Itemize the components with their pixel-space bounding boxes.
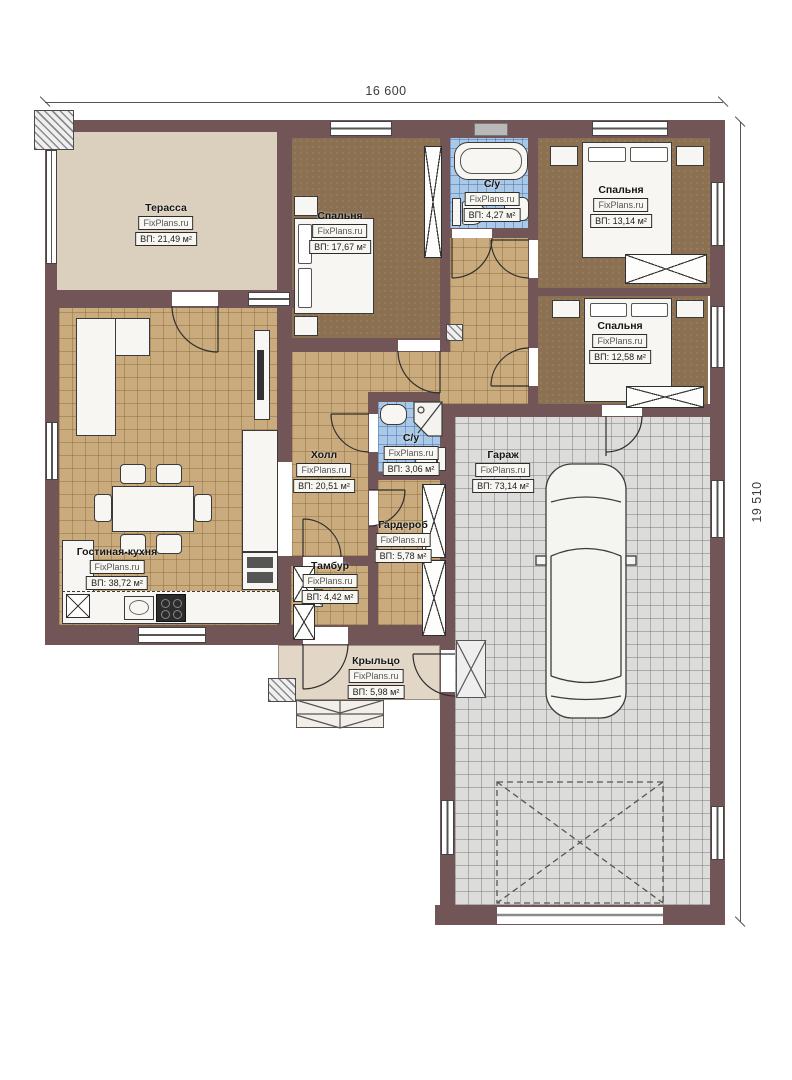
watermark: FixPlans.ru bbox=[383, 446, 438, 460]
watermark: FixPlans.ru bbox=[89, 560, 144, 574]
watermark: FixPlans.ru bbox=[592, 334, 647, 348]
car-icon bbox=[536, 464, 636, 718]
room-name: Спальня bbox=[598, 184, 643, 196]
room-name: Гардероб bbox=[378, 519, 428, 531]
room-area: ВП: 12,58 м² bbox=[589, 350, 651, 364]
watermark: FixPlans.ru bbox=[464, 192, 519, 206]
watermark: FixPlans.ru bbox=[475, 463, 530, 477]
room-area: ВП: 20,51 м² bbox=[293, 479, 355, 493]
room-label-porch: Крыльцо FixPlans.ru ВП: 5,98 м² bbox=[348, 655, 405, 699]
room-name: Тамбур bbox=[311, 560, 349, 572]
garage-gate-zone bbox=[497, 782, 663, 903]
room-name: С/у bbox=[403, 432, 419, 444]
room-name: Гараж bbox=[487, 449, 518, 461]
room-label-bedroom-1: Спальня FixPlans.ru ВП: 17,67 м² bbox=[309, 210, 371, 254]
watermark: FixPlans.ru bbox=[138, 216, 193, 230]
room-area: ВП: 4,27 м² bbox=[464, 208, 521, 222]
room-name: Терасса bbox=[145, 202, 187, 214]
room-label-bedroom-2: Спальня FixPlans.ru ВП: 13,14 м² bbox=[590, 184, 652, 228]
room-label-bathroom-1: С/у FixPlans.ru ВП: 4,27 м² bbox=[464, 178, 521, 222]
room-name: Спальня bbox=[597, 320, 642, 332]
watermark: FixPlans.ru bbox=[312, 224, 367, 238]
room-area: ВП: 17,67 м² bbox=[309, 240, 371, 254]
room-label-garage: Гараж FixPlans.ru ВП: 73,14 м² bbox=[472, 449, 534, 493]
shower-icon bbox=[414, 402, 442, 436]
watermark: FixPlans.ru bbox=[348, 669, 403, 683]
room-name: Спальня bbox=[317, 210, 362, 222]
room-label-wardrobe: Гардероб FixPlans.ru ВП: 5,78 м² bbox=[375, 519, 432, 563]
watermark: FixPlans.ru bbox=[375, 533, 430, 547]
room-area: ВП: 5,98 м² bbox=[348, 685, 405, 699]
room-area: ВП: 13,14 м² bbox=[590, 214, 652, 228]
room-name: Холл bbox=[311, 449, 337, 461]
room-label-hall: Холл FixPlans.ru ВП: 20,51 м² bbox=[293, 449, 355, 493]
room-name: С/у bbox=[484, 178, 500, 190]
watermark: FixPlans.ru bbox=[296, 463, 351, 477]
watermark: FixPlans.ru bbox=[593, 198, 648, 212]
room-label-bathroom-2: С/у FixPlans.ru ВП: 3,06 м² bbox=[383, 432, 440, 476]
floor-plan: 16 600 19 510 bbox=[0, 0, 792, 1080]
room-area: ВП: 38,72 м² bbox=[86, 576, 148, 590]
room-name: Крыльцо bbox=[352, 655, 400, 667]
room-label-bedroom-3: Спальня FixPlans.ru ВП: 12,58 м² bbox=[589, 320, 651, 364]
room-label-living-kitchen: Гостиная-кухня FixPlans.ru ВП: 38,72 м² bbox=[77, 546, 157, 590]
room-area: ВП: 73,14 м² bbox=[472, 479, 534, 493]
room-area: ВП: 5,78 м² bbox=[375, 549, 432, 563]
room-area: ВП: 21,49 м² bbox=[135, 232, 197, 246]
room-label-vestibule: Тамбур FixPlans.ru ВП: 4,42 м² bbox=[302, 560, 359, 604]
room-name: Гостиная-кухня bbox=[77, 546, 157, 558]
room-area: ВП: 4,42 м² bbox=[302, 590, 359, 604]
room-label-terrace: Терасса FixPlans.ru ВП: 21,49 м² bbox=[135, 202, 197, 246]
watermark: FixPlans.ru bbox=[302, 574, 357, 588]
room-area: ВП: 3,06 м² bbox=[383, 462, 440, 476]
